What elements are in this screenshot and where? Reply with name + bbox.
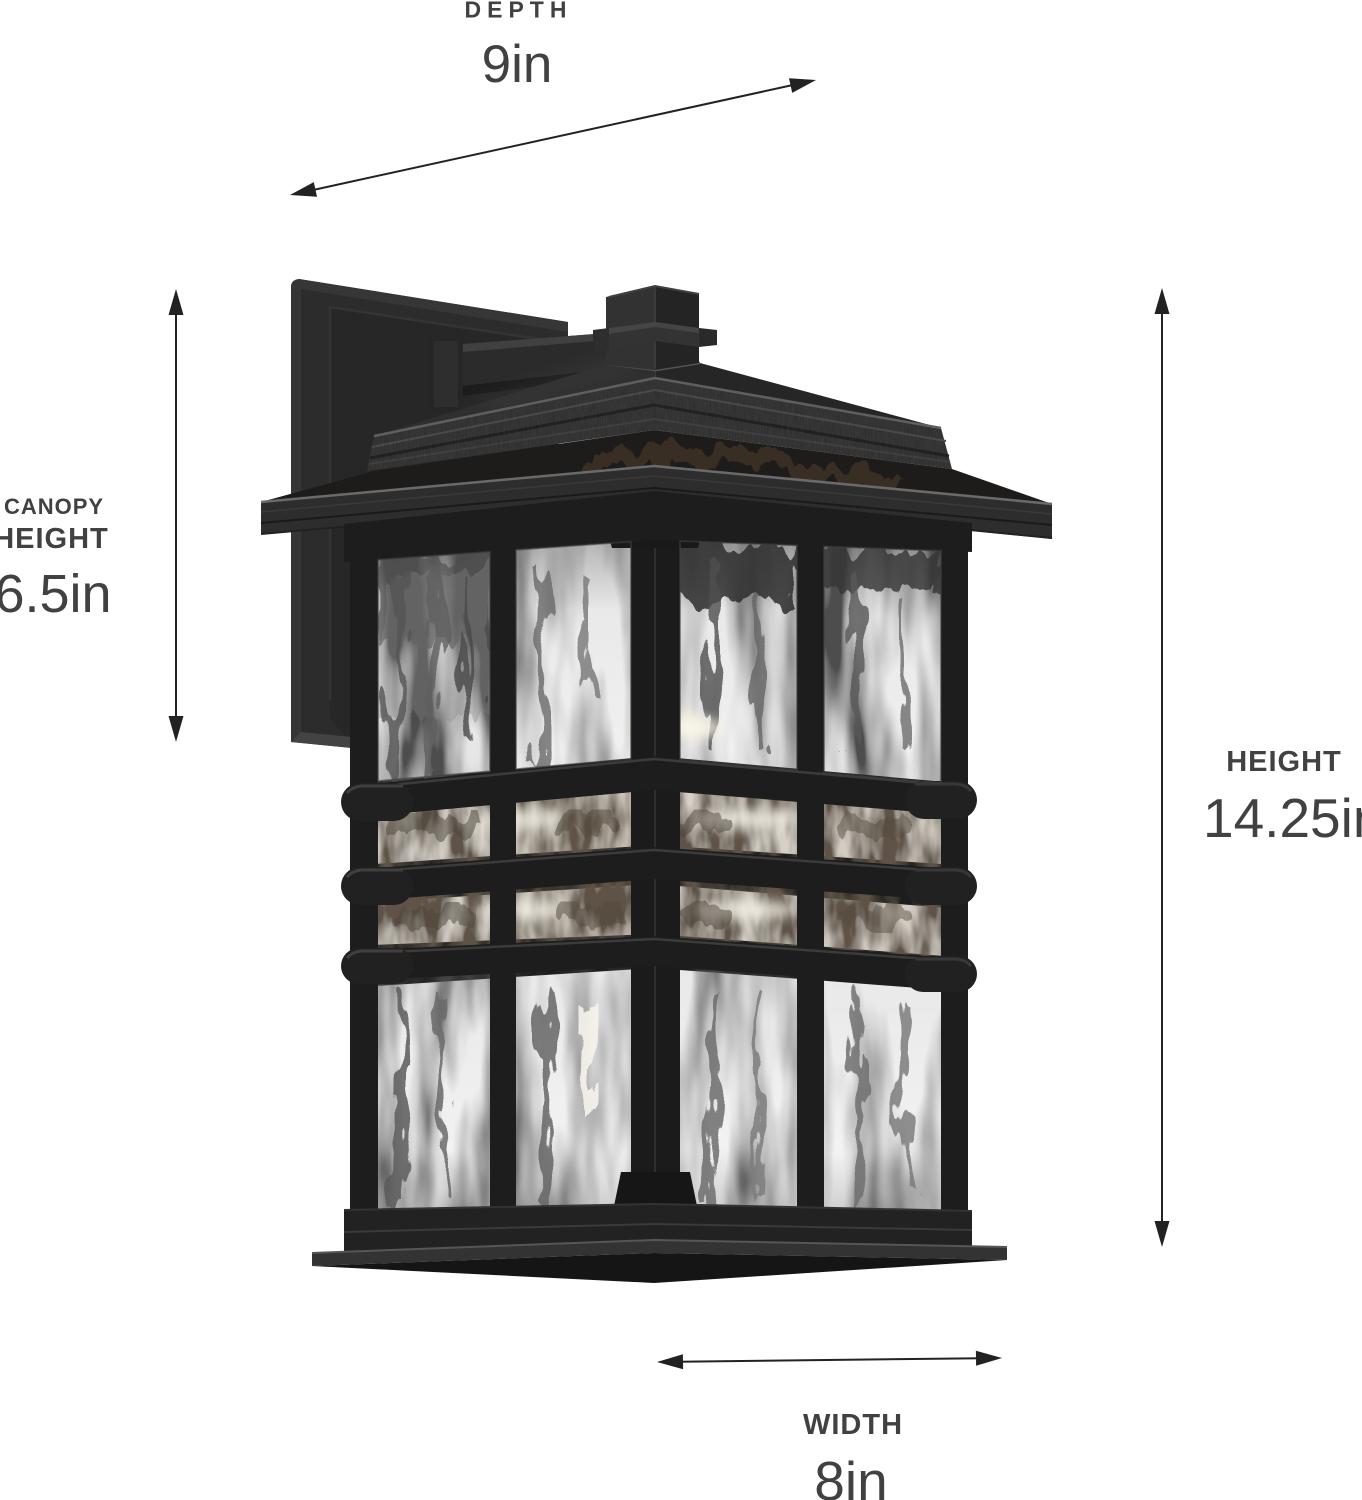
- svg-text:9in: 9in: [482, 35, 553, 94]
- svg-text:8in: 8in: [814, 1450, 887, 1500]
- svg-text:HEIGHT: HEIGHT: [0, 523, 109, 555]
- svg-text:HEIGHT: HEIGHT: [1226, 746, 1342, 778]
- svg-text:CANOPY: CANOPY: [4, 494, 104, 519]
- svg-text:DEPTH: DEPTH: [465, 0, 573, 23]
- svg-text:14.25in: 14.25in: [1203, 787, 1362, 849]
- svg-text:WIDTH: WIDTH: [803, 1409, 903, 1441]
- svg-text:6.5in: 6.5in: [0, 564, 112, 624]
